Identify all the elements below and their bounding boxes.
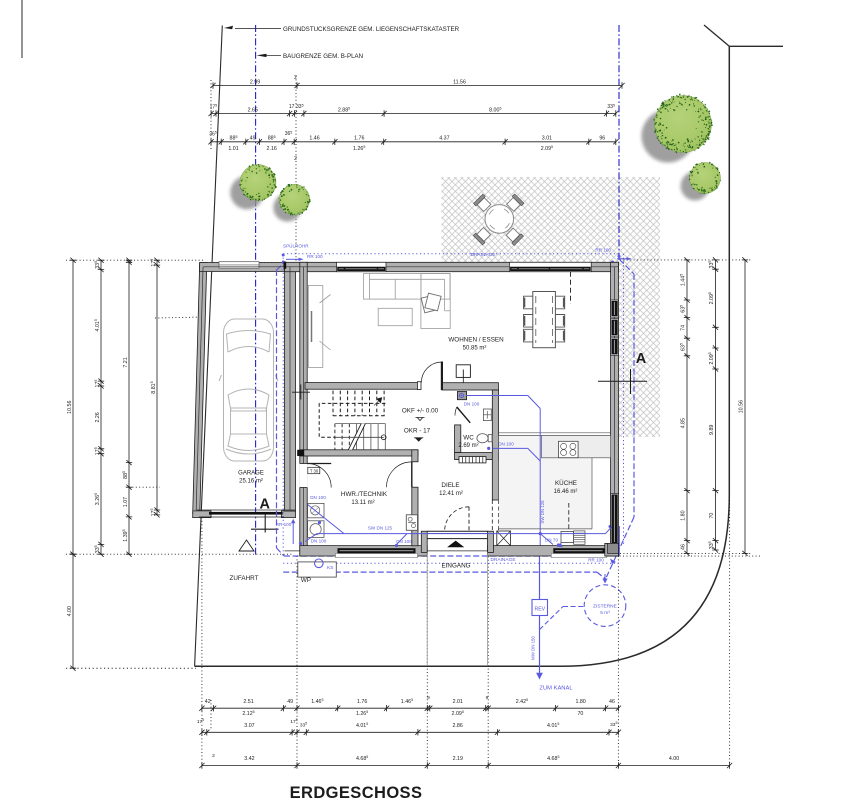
svg-text:635: 635 <box>680 343 687 351</box>
svg-text:RR 100: RR 100 <box>588 558 604 563</box>
svg-text:DIELE: DIELE <box>441 482 459 489</box>
svg-text:WOHNEN / ESSEN: WOHNEN / ESSEN <box>448 336 504 343</box>
svg-text:335: 335 <box>708 261 715 269</box>
svg-text:3.42: 3.42 <box>244 756 254 762</box>
svg-text:2.095: 2.095 <box>452 710 464 717</box>
svg-text:DN 70: DN 70 <box>545 537 558 542</box>
svg-text:DRAINAGE: DRAINAGE <box>470 252 495 258</box>
svg-text:1.80: 1.80 <box>575 699 585 705</box>
svg-text:2.425: 2.425 <box>516 698 528 705</box>
svg-text:RR 100: RR 100 <box>276 522 292 527</box>
svg-text:DRAINAGE: DRAINAGE <box>490 557 515 563</box>
svg-text:70: 70 <box>577 711 583 717</box>
svg-text:1.265: 1.265 <box>353 145 365 152</box>
svg-text:365: 365 <box>285 130 293 137</box>
svg-text:DN 100: DN 100 <box>396 539 412 544</box>
svg-text:49: 49 <box>250 136 256 142</box>
svg-text:10.56: 10.56 <box>67 401 73 414</box>
svg-text:335: 335 <box>94 261 101 269</box>
svg-text:10.56: 10.56 <box>738 400 744 413</box>
svg-text:ZUFAHRT: ZUFAHRT <box>230 575 259 582</box>
svg-text:17: 17 <box>289 104 295 110</box>
svg-text:335: 335 <box>300 722 307 729</box>
svg-text:DN 100: DN 100 <box>498 441 514 446</box>
svg-text:46: 46 <box>680 544 686 550</box>
svg-text:335: 335 <box>296 103 304 110</box>
svg-text:HWR./TECHNIK: HWR./TECHNIK <box>341 491 388 498</box>
svg-text:7.21: 7.21 <box>123 357 129 367</box>
svg-text:2.095: 2.095 <box>541 145 553 152</box>
svg-text:335: 335 <box>610 721 617 728</box>
svg-text:OKF +/- 0.00: OKF +/- 0.00 <box>402 408 439 415</box>
svg-text:9.89: 9.89 <box>709 425 715 435</box>
svg-text:BAUGRENZE GEM. B-PLAN: BAUGRENZE GEM. B-PLAN <box>283 53 363 60</box>
svg-text:1.76: 1.76 <box>354 136 364 142</box>
svg-text:25.16 m²: 25.16 m² <box>239 479 263 485</box>
svg-text:42: 42 <box>205 699 211 705</box>
svg-text:WP: WP <box>301 577 311 584</box>
svg-text:2.99: 2.99 <box>250 79 260 85</box>
svg-text:16.46 m²: 16.46 m² <box>554 489 578 495</box>
svg-text:ZISTERNE: ZISTERNE <box>593 603 617 609</box>
svg-text:GRUNDSTUCKSGRENZE GEM. LIEGENS: GRUNDSTUCKSGRENZE GEM. LIEGENSCHAFTSKATA… <box>283 26 460 33</box>
svg-text:2.51: 2.51 <box>243 699 253 705</box>
svg-text:70: 70 <box>709 513 715 519</box>
svg-text:ZUM KANAL: ZUM KANAL <box>539 686 573 692</box>
svg-text:74: 74 <box>680 325 686 331</box>
svg-text:8.005: 8.005 <box>489 107 501 114</box>
svg-text:1.76: 1.76 <box>357 699 367 705</box>
svg-text:11.56: 11.56 <box>453 79 466 85</box>
svg-text:2.01: 2.01 <box>453 699 463 705</box>
svg-text:4.85: 4.85 <box>680 418 686 428</box>
svg-text:4.00: 4.00 <box>67 606 73 616</box>
svg-text:3.07: 3.07 <box>244 723 254 729</box>
svg-text:1.80: 1.80 <box>680 510 686 520</box>
svg-text:3.01: 3.01 <box>542 136 552 142</box>
svg-text:50.85 m²: 50.85 m² <box>463 345 487 351</box>
svg-text:2.69 m²: 2.69 m² <box>458 443 478 449</box>
svg-text:1.46: 1.46 <box>309 136 319 142</box>
svg-text:2: 2 <box>212 753 215 759</box>
svg-text:SPÜLROHR: SPÜLROHR <box>283 243 309 249</box>
svg-text:2.095: 2.095 <box>708 292 715 304</box>
svg-text:MW DN 150: MW DN 150 <box>531 635 536 659</box>
svg-text:KÜCHE: KÜCHE <box>555 479 577 487</box>
svg-text:RR 100: RR 100 <box>595 248 611 253</box>
svg-text:2.095: 2.095 <box>708 352 715 364</box>
svg-text:885: 885 <box>122 471 129 479</box>
svg-text:335: 335 <box>94 545 101 553</box>
svg-text:1.465: 1.465 <box>401 698 413 705</box>
svg-text:96: 96 <box>599 136 605 142</box>
svg-text:2: 2 <box>294 156 297 162</box>
svg-text:WC: WC <box>463 435 474 442</box>
svg-text:OKR - 17: OKR - 17 <box>404 428 431 435</box>
svg-text:2.16: 2.16 <box>267 146 277 152</box>
svg-text:13.11 m²: 13.11 m² <box>351 500 374 506</box>
svg-text:8.815: 8.815 <box>150 381 157 393</box>
svg-text:REV: REV <box>534 606 545 612</box>
svg-text:2.885: 2.885 <box>338 107 350 114</box>
svg-text:1.265: 1.265 <box>356 710 368 717</box>
svg-text:5 m³: 5 m³ <box>600 610 610 616</box>
svg-text:1.395: 1.395 <box>122 529 129 541</box>
svg-text:4.37: 4.37 <box>439 136 449 142</box>
svg-text:2.125: 2.125 <box>242 710 254 717</box>
svg-text:365: 365 <box>209 131 217 138</box>
svg-text:T 30: T 30 <box>310 468 319 473</box>
svg-text:1.01: 1.01 <box>228 146 238 152</box>
svg-text:335: 335 <box>607 103 615 110</box>
svg-text:175: 175 <box>197 718 204 725</box>
svg-text:1.465: 1.465 <box>311 698 323 705</box>
svg-text:635: 635 <box>680 305 687 313</box>
svg-text:DN 100: DN 100 <box>464 402 480 407</box>
svg-text:4.685: 4.685 <box>547 755 559 762</box>
svg-text:A: A <box>636 351 647 367</box>
svg-text:4.015: 4.015 <box>94 319 101 331</box>
svg-text:DN 100: DN 100 <box>310 495 326 500</box>
svg-text:GARAGE: GARAGE <box>238 471 264 477</box>
svg-text:2.19: 2.19 <box>453 756 463 762</box>
svg-text:49: 49 <box>287 699 293 705</box>
svg-text:1.07: 1.07 <box>123 497 129 507</box>
svg-text:ERDGESCHOSS: ERDGESCHOSS <box>290 784 423 802</box>
svg-text:2.26: 2.26 <box>95 412 101 422</box>
svg-text:DN 100: DN 100 <box>311 539 327 544</box>
svg-text:RR 100: RR 100 <box>307 254 323 259</box>
svg-text:1.445: 1.445 <box>680 274 687 286</box>
svg-text:KS: KS <box>327 565 333 571</box>
svg-text:SW DN 125: SW DN 125 <box>368 526 393 531</box>
svg-text:335: 335 <box>708 541 715 549</box>
svg-text:4.015: 4.015 <box>356 722 368 729</box>
svg-text:885: 885 <box>268 135 276 142</box>
svg-text:12.41 m²: 12.41 m² <box>439 491 463 497</box>
svg-text:2.86: 2.86 <box>452 723 462 729</box>
svg-text:46: 46 <box>609 699 615 705</box>
svg-text:885: 885 <box>230 135 238 142</box>
svg-text:4.00: 4.00 <box>669 756 679 762</box>
svg-text:4.015: 4.015 <box>547 722 559 729</box>
svg-text:EINGANG: EINGANG <box>441 562 470 569</box>
svg-text:3.265: 3.265 <box>94 493 101 505</box>
svg-text:4.685: 4.685 <box>356 755 368 762</box>
svg-text:2.65: 2.65 <box>248 107 258 113</box>
svg-text:SW DN 125: SW DN 125 <box>540 500 545 524</box>
